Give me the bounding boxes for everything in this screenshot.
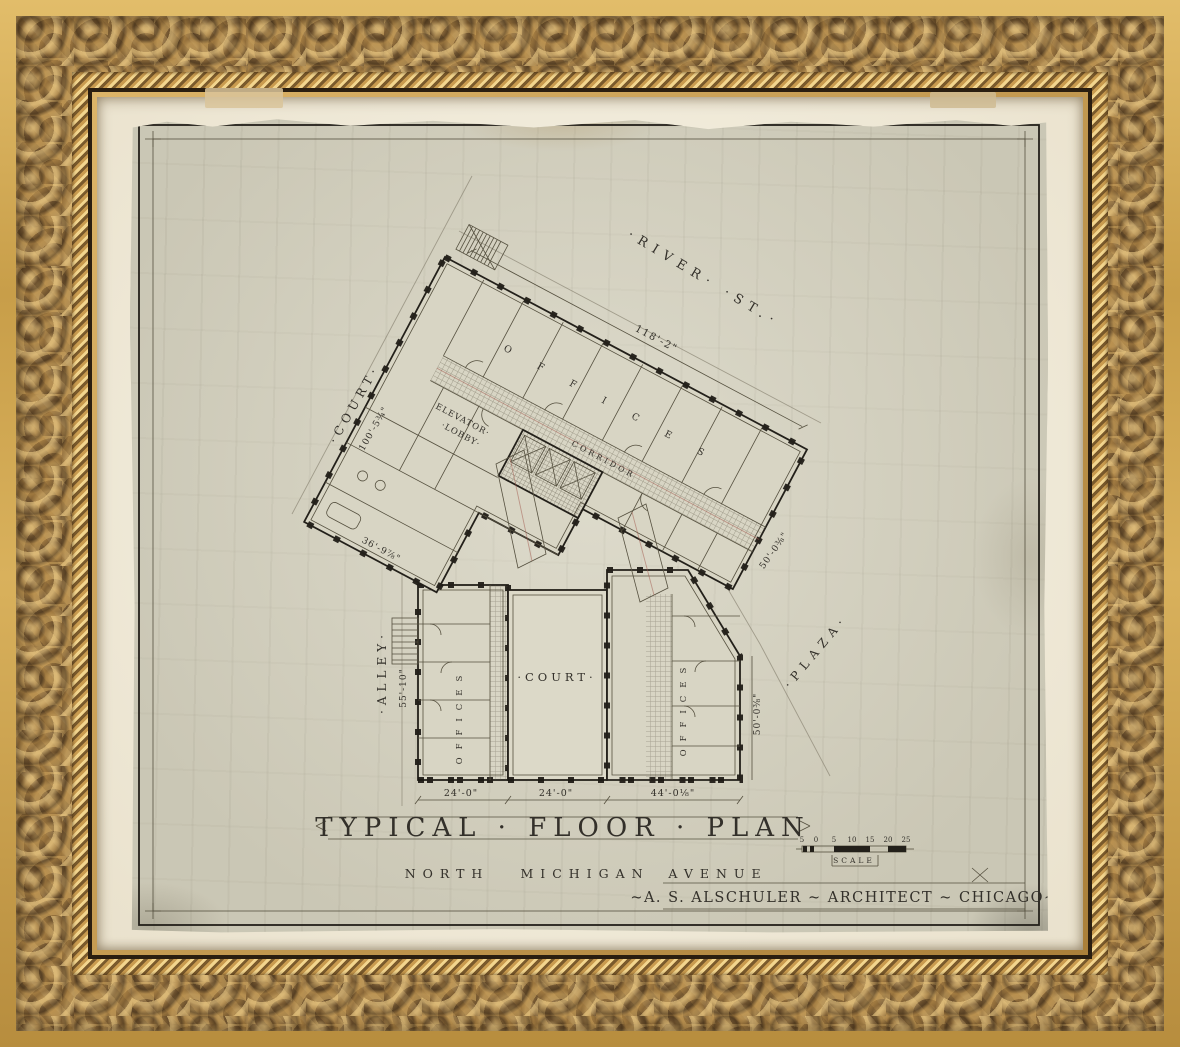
scale-tick-20: 20 xyxy=(884,836,893,844)
title-block: TYPICAL · FLOOR · PLAN NORTH MICHIGAN AV… xyxy=(315,813,1048,909)
label-offices-left: OFFICES xyxy=(455,668,465,765)
scale-tick-5a: 5 xyxy=(800,836,804,844)
scale-tick-25: 25 xyxy=(902,836,911,844)
dim-alley-side: 55'-10" xyxy=(399,668,409,708)
scale-tick-15: 15 xyxy=(866,836,875,844)
floor-plan-drawing: 118'-2" OFFICES CORRIDOR ELEVATOR· ·LOBB… xyxy=(130,116,1048,934)
label-offices-right: OFFICES xyxy=(679,660,689,757)
label-alley: ·ALLEY· xyxy=(375,630,389,714)
dim-bottom-left: 24'-0" xyxy=(444,788,478,799)
scale-tick-0: 0 xyxy=(814,836,818,844)
scale-tick-10: 10 xyxy=(848,836,857,844)
tape-stain-left xyxy=(205,88,283,108)
label-plaza: ·PLAZA· xyxy=(781,612,850,691)
dim-bottom-mid: 24'-0" xyxy=(539,788,573,799)
dim-bottom-right: 44'-0⅛" xyxy=(651,788,696,799)
address-word-north: NORTH xyxy=(405,866,490,881)
dim-river-front: 118'-2" xyxy=(633,323,679,355)
plan-title: TYPICAL · FLOOR · PLAN xyxy=(315,813,811,843)
label-court-yard: ·COURT· xyxy=(517,670,596,684)
dim-plaza-vert: 50'-0⅜" xyxy=(753,693,763,736)
framed-floor-plan-photo: 118'-2" OFFICES CORRIDOR ELEVATOR· ·LOBB… xyxy=(0,0,1180,1047)
address-word-avenue: AVENUE xyxy=(667,866,767,881)
drawing-sheet: 118'-2" OFFICES CORRIDOR ELEVATOR· ·LOBB… xyxy=(130,116,1048,934)
scale-label: SCALE xyxy=(833,856,875,865)
scale-bar: 5 0 5 10 15 20 25 SCALE xyxy=(796,836,914,866)
tape-stain-right xyxy=(930,92,996,108)
architect-line: ~A. S. ALSCHULER ~ ARCHITECT ~ CHICAGO~ xyxy=(630,890,1048,906)
label-river-st: ·RIVER· ·ST.· xyxy=(625,227,783,330)
dim-plaza-diag: 50'-0⅜" xyxy=(758,531,791,572)
sheet-border xyxy=(139,125,1039,925)
scale-tick-5b: 5 xyxy=(832,836,836,844)
address-word-michigan: MICHIGAN xyxy=(520,866,649,881)
